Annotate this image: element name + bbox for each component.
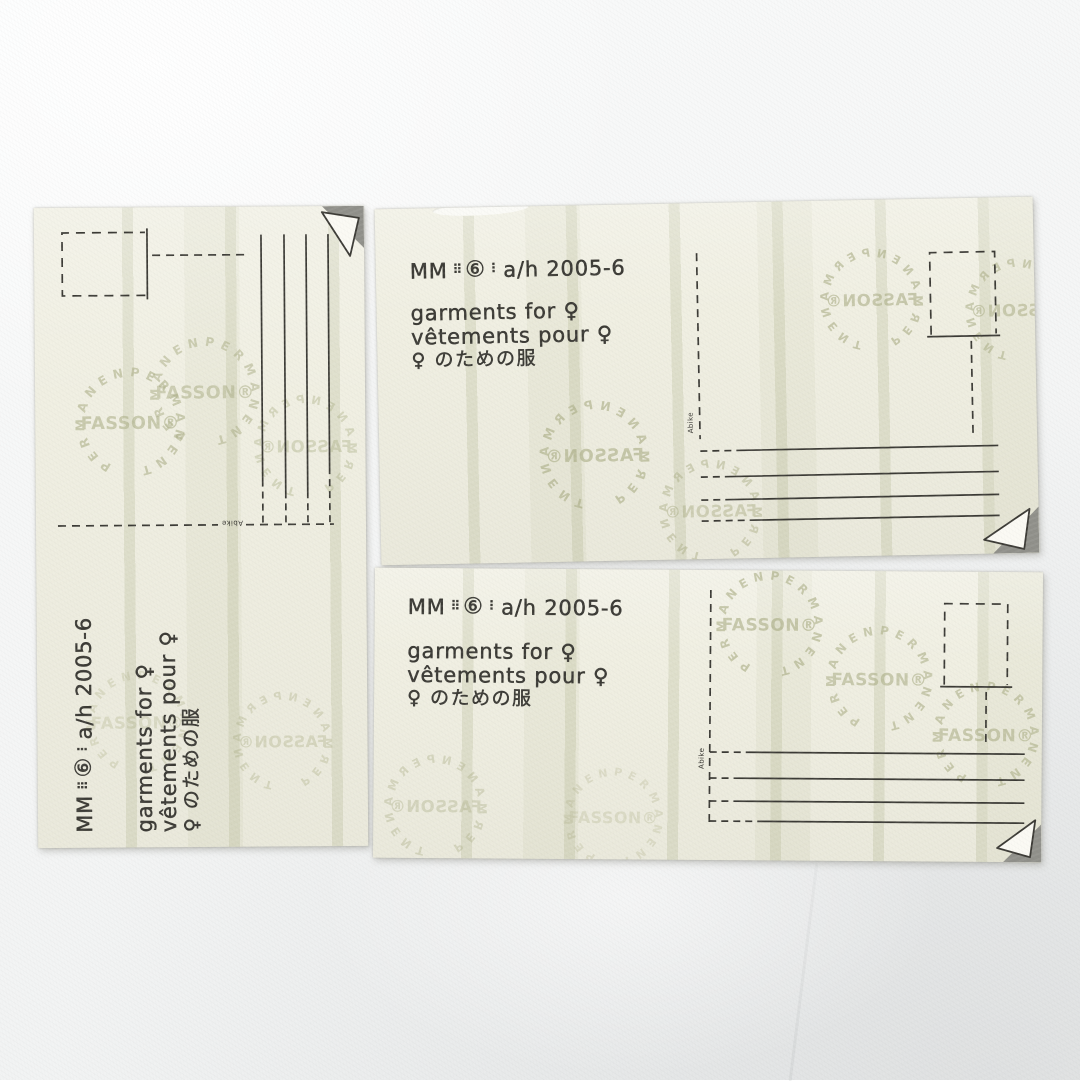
stamp-box [944,604,1008,685]
logo-dots-icon: ⠇ [489,600,497,613]
garment-line-fr: vêtements pour ♀ [407,663,609,688]
circled-six-icon: ⑥ [72,757,97,778]
writing-line [709,821,1024,823]
garment-line-jp: ♀ のための服 [180,630,205,832]
garment-label-bottom-right: PERMANENT PERMANENTFASSON®PERMANENT PERM… [373,568,1043,863]
mm-logo-text: MM [72,795,96,833]
address-divider-line [697,253,701,439]
address-divider-line [58,525,218,526]
garment-label-top-right: PERMANENT PERMANENTFASSON®PERMANENT PERM… [375,197,1040,566]
micro-text: Abike [222,519,243,527]
garment-line-fr: vêtements pour ♀ [411,322,613,349]
fold-corner-flap-icon [997,820,1035,857]
writing-line [328,234,330,522]
writing-line [700,445,998,451]
brand-line: MM⠿⑥⠇ a/h 2005-6 [410,255,626,284]
label-line-art: Abike [375,197,1040,566]
address-divider-line [246,524,334,525]
label-content: Abike MM⠿⑥⠇ a/h 2005-6 garments for ♀ vê… [373,568,1043,863]
logo-dots-icon: ⠿ [78,782,91,790]
garment-line-jp: ♀ のための服 [407,687,609,712]
mm-logo-text: MM [410,258,448,283]
season-code: a/h 2005-6 [501,595,623,620]
writing-line [702,515,1000,521]
mm-logo-text: MM [408,594,446,618]
garment-line-en: garments for ♀ [407,640,609,665]
stamp-box [62,232,145,296]
label-content: Abike MM⠿⑥⠇ a/h 2005-6 garments for ♀ vê… [34,206,368,848]
garment-label-left: PERMANENT PERMANENTFASSON®PERMANENT PERM… [34,206,368,848]
logo-dots-icon: ⠇ [491,263,499,276]
circled-six-icon: ⑥ [463,594,484,619]
stamp-box-tail-line [152,255,250,256]
garment-description: garments for ♀ vêtements pour ♀ ♀ のための服 [407,640,610,712]
writing-line [284,234,286,522]
writing-line [709,801,1024,803]
garment-description: garments for ♀ vêtements pour ♀ ♀ のための服 [410,299,613,373]
logo-dots-icon: ⠇ [78,744,91,752]
garment-line-en: garments for ♀ [133,630,158,832]
label-content: Abike MM⠿⑥⠇ a/h 2005-6 garments for ♀ vê… [375,197,1040,566]
garment-description: garments for ♀ vêtements pour ♀ ♀ のための服 [133,630,205,833]
logo-dots-icon: ⠿ [453,264,461,277]
garment-line-fr: vêtements pour ♀ [156,630,181,832]
season-code: a/h 2005-6 [71,617,96,739]
writing-line [710,752,1025,754]
stamp-box-baseline [927,335,1000,336]
logo-dots-icon: ⠿ [451,600,459,613]
brand-line: MM⠿⑥⠇ a/h 2005-6 [408,594,624,621]
stamp-box-baseline [940,687,1012,688]
season-code: a/h 2005-6 [503,255,626,281]
writing-line [710,778,1025,780]
micro-text: Abike [687,412,695,433]
writing-line [261,235,263,523]
stamp-box-tail-line [971,341,973,435]
garment-line-jp: ♀ のための服 [411,346,613,373]
writing-line [306,234,308,522]
micro-text: Abike [698,748,706,769]
address-divider-line [709,590,711,822]
writing-line [701,471,999,477]
stamp-box [930,251,997,334]
writing-line [701,494,999,500]
circled-six-icon: ⑥ [465,257,486,282]
brand-line: MM⠿⑥⠇ a/h 2005-6 [71,617,98,833]
